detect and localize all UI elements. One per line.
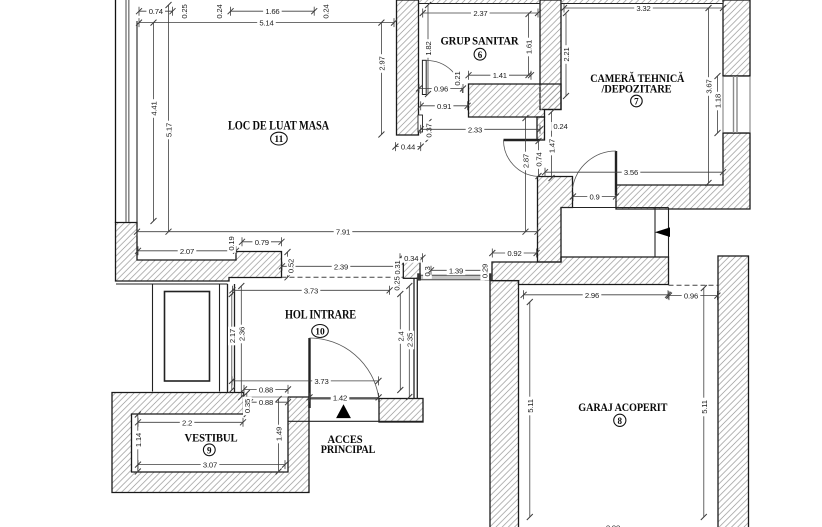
svg-text:5.17: 5.17 [165, 123, 174, 137]
svg-text:PRINCIPAL: PRINCIPAL [321, 443, 376, 456]
svg-text:2.97: 2.97 [377, 56, 386, 70]
svg-text:0.74: 0.74 [149, 7, 164, 16]
svg-text:LOC DE LUAT MASA: LOC DE LUAT MASA [228, 119, 329, 133]
svg-text:0.9: 0.9 [589, 193, 599, 202]
svg-text:0.29: 0.29 [480, 264, 489, 278]
svg-text:0.24: 0.24 [215, 3, 224, 18]
svg-text:0.52: 0.52 [287, 259, 296, 273]
svg-text:0.88: 0.88 [259, 385, 273, 394]
svg-text:10: 10 [315, 327, 325, 337]
svg-text:GARAJ ACOPERIT: GARAJ ACOPERIT [578, 401, 667, 414]
svg-text:2.2: 2.2 [182, 418, 192, 427]
svg-text:0.21: 0.21 [453, 71, 462, 85]
svg-text:7: 7 [634, 97, 639, 107]
svg-text:/DEPOZITARE: /DEPOZITARE [601, 82, 672, 95]
svg-text:3.73: 3.73 [304, 286, 318, 295]
svg-text:1.82: 1.82 [424, 41, 433, 55]
svg-text:0.79: 0.79 [255, 238, 269, 247]
svg-text:2.39: 2.39 [334, 262, 348, 271]
svg-text:2.36: 2.36 [237, 327, 246, 341]
svg-text:2.33: 2.33 [468, 125, 482, 134]
svg-text:HOL INTRARE: HOL INTRARE [285, 307, 356, 321]
svg-text:3.32: 3.32 [636, 4, 650, 13]
svg-text:0.91: 0.91 [437, 102, 451, 111]
svg-text:1.39: 1.39 [449, 266, 463, 275]
svg-text:4.41: 4.41 [150, 101, 159, 115]
svg-text:2.4: 2.4 [396, 331, 405, 342]
svg-text:0.34: 0.34 [404, 254, 419, 263]
svg-text:1.49: 1.49 [275, 427, 284, 441]
svg-text:7.91: 7.91 [336, 228, 350, 237]
svg-text:3.07: 3.07 [203, 461, 217, 470]
svg-text:0.44: 0.44 [401, 143, 416, 152]
svg-text:1.42: 1.42 [333, 393, 347, 402]
svg-text:8: 8 [618, 416, 623, 426]
svg-text:3.73: 3.73 [314, 377, 328, 386]
svg-text:2.96: 2.96 [585, 291, 599, 300]
svg-text:1.18: 1.18 [714, 94, 723, 108]
svg-text:1.47: 1.47 [548, 139, 557, 153]
svg-text:1.66: 1.66 [265, 7, 279, 16]
svg-text:0.74: 0.74 [535, 151, 544, 166]
svg-text:0.19: 0.19 [227, 236, 236, 250]
svg-text:2.87: 2.87 [522, 154, 531, 168]
svg-text:0.25: 0.25 [393, 276, 402, 290]
svg-text:2.17: 2.17 [228, 329, 237, 343]
svg-text:0.96: 0.96 [684, 292, 698, 301]
svg-text:0.35: 0.35 [243, 399, 252, 413]
svg-text:1.61: 1.61 [525, 40, 534, 54]
svg-text:3.67: 3.67 [705, 79, 714, 93]
svg-text:1.14: 1.14 [134, 432, 143, 447]
svg-text:VESTIBUL: VESTIBUL [185, 431, 238, 444]
svg-text:5.11: 5.11 [700, 400, 709, 414]
svg-text:2.07: 2.07 [180, 247, 194, 256]
svg-text:5.14: 5.14 [259, 19, 274, 28]
svg-text:11: 11 [274, 134, 284, 144]
svg-text:0.96: 0.96 [434, 85, 448, 94]
svg-text:0.37: 0.37 [425, 123, 434, 137]
svg-text:2.35: 2.35 [405, 333, 414, 347]
svg-text:3.56: 3.56 [624, 168, 638, 177]
svg-text:9: 9 [207, 445, 212, 455]
svg-text:0.25: 0.25 [180, 4, 189, 18]
svg-text:0.31: 0.31 [393, 260, 402, 274]
svg-text:2.21: 2.21 [562, 47, 571, 61]
svg-text:5.11: 5.11 [526, 399, 535, 413]
svg-text:GRUP SANITAR: GRUP SANITAR [441, 35, 520, 48]
svg-text:0.24: 0.24 [553, 122, 568, 131]
svg-text:2.37: 2.37 [473, 9, 487, 18]
svg-text:0.92: 0.92 [507, 249, 521, 258]
svg-text:0.88: 0.88 [259, 398, 273, 407]
svg-text:0.24: 0.24 [322, 3, 331, 18]
svg-text:6: 6 [478, 50, 483, 60]
svg-text:1.41: 1.41 [493, 71, 507, 80]
